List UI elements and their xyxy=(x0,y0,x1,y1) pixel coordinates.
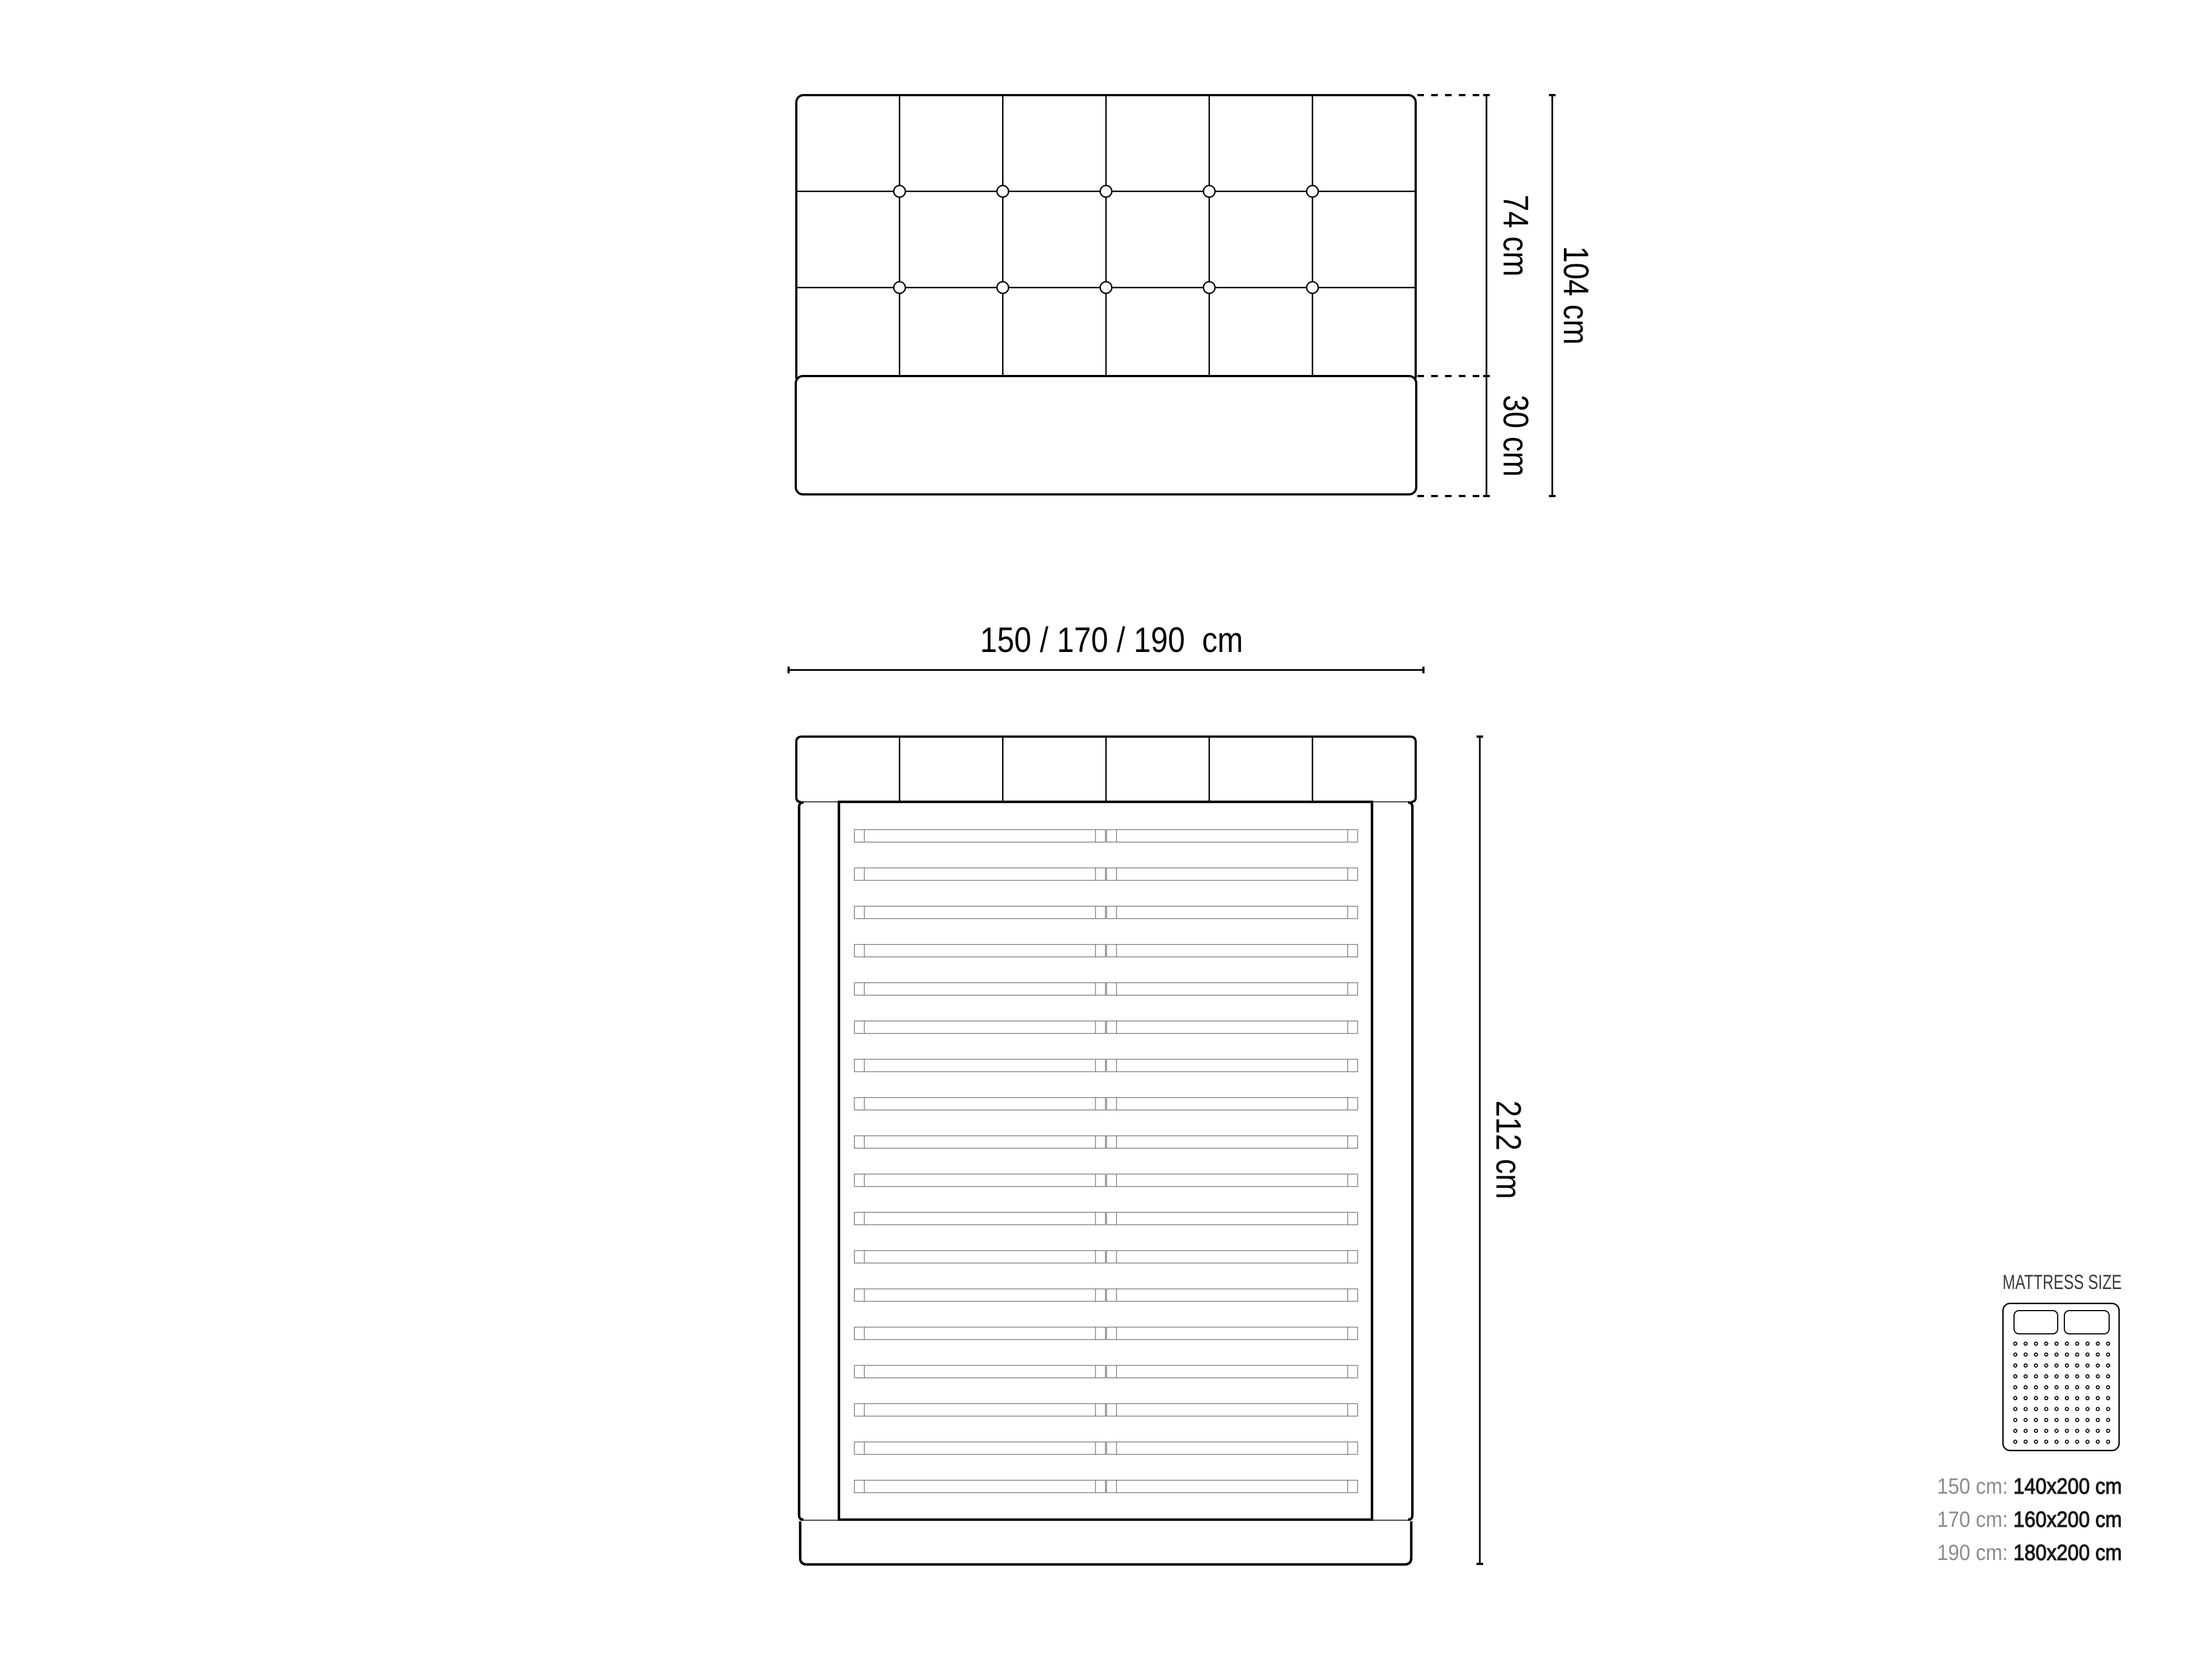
svg-text:30 cm: 30 cm xyxy=(1496,395,1536,477)
svg-text:MATTRESS SIZE: MATTRESS SIZE xyxy=(2002,1271,2121,1293)
svg-text:150 cm: 140x200 cm: 150 cm: 140x200 cm xyxy=(1937,1474,2122,1499)
svg-text:170 cm: 160x200 cm: 170 cm: 160x200 cm xyxy=(1937,1507,2122,1532)
svg-text:190 cm: 180x200 cm: 190 cm: 180x200 cm xyxy=(1937,1541,2122,1565)
svg-text:74 cm: 74 cm xyxy=(1496,195,1536,276)
svg-text:150 / 170 / 190 cm: 150 / 170 / 190 cm xyxy=(980,620,1243,660)
svg-text:104 cm: 104 cm xyxy=(1556,246,1596,345)
svg-text:212 cm: 212 cm xyxy=(1489,1100,1528,1199)
